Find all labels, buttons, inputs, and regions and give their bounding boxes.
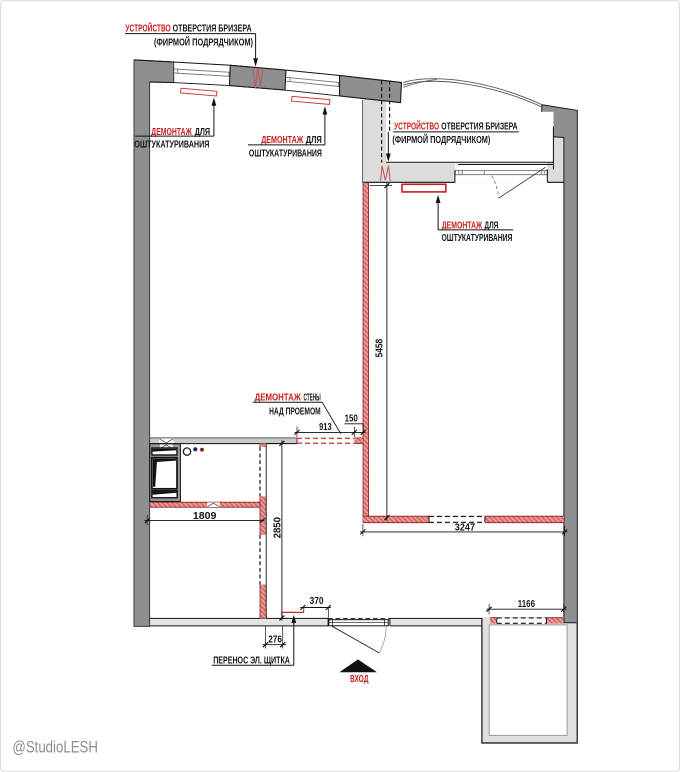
svg-text:ДЛЯ: ДЛЯ <box>306 135 322 146</box>
svg-text:НАД ПРОЕМОМ: НАД ПРОЕМОМ <box>269 407 321 418</box>
svg-text:@StudioLESH: @StudioLESH <box>12 739 98 757</box>
svg-text:276: 276 <box>268 634 282 645</box>
svg-text:ОТВЕРСТИЯ БРИЗЕРА: ОТВЕРСТИЯ БРИЗЕРА <box>173 23 252 34</box>
svg-text:1166: 1166 <box>518 599 536 610</box>
svg-text:ОШТУКАТУРИВАНИЯ: ОШТУКАТУРИВАНИЯ <box>134 139 209 150</box>
svg-text:150: 150 <box>345 414 359 425</box>
svg-text:ОШТУКАТУРИВАНИЯ: ОШТУКАТУРИВАНИЯ <box>442 233 513 244</box>
svg-text:(ФИРМОЙ ПОДРЯДЧИКОМ): (ФИРМОЙ ПОДРЯДЧИКОМ) <box>392 133 490 146</box>
svg-text:ОШТУКАТУРИВАНИЯ: ОШТУКАТУРИВАНИЯ <box>249 149 322 160</box>
svg-text:СТЕНЫ: СТЕНЫ <box>304 392 321 403</box>
svg-text:(ФИРМОЙ ПОДРЯДЧИКОМ): (ФИРМОЙ ПОДРЯДЧИКОМ) <box>154 35 253 48</box>
svg-text:ВХОД: ВХОД <box>350 674 369 685</box>
svg-text:370: 370 <box>310 596 324 607</box>
svg-text:1809: 1809 <box>193 511 217 522</box>
svg-text:УСТРОЙСТВО: УСТРОЙСТВО <box>394 119 439 132</box>
svg-text:3247: 3247 <box>455 523 476 534</box>
svg-text:913: 913 <box>319 422 332 433</box>
svg-text:УСТРОЙСТВО: УСТРОЙСТВО <box>125 21 170 34</box>
svg-text:ДЕМОНТАЖ: ДЕМОНТАЖ <box>261 135 304 146</box>
svg-text:2850: 2850 <box>272 517 283 539</box>
svg-text:ОТВЕРСТИЯ БРИЗЕРА: ОТВЕРСТИЯ БРИЗЕРА <box>441 121 518 132</box>
svg-text:5458: 5458 <box>375 338 386 357</box>
svg-text:ДЕМОНТАЖ: ДЕМОНТАЖ <box>255 392 302 403</box>
